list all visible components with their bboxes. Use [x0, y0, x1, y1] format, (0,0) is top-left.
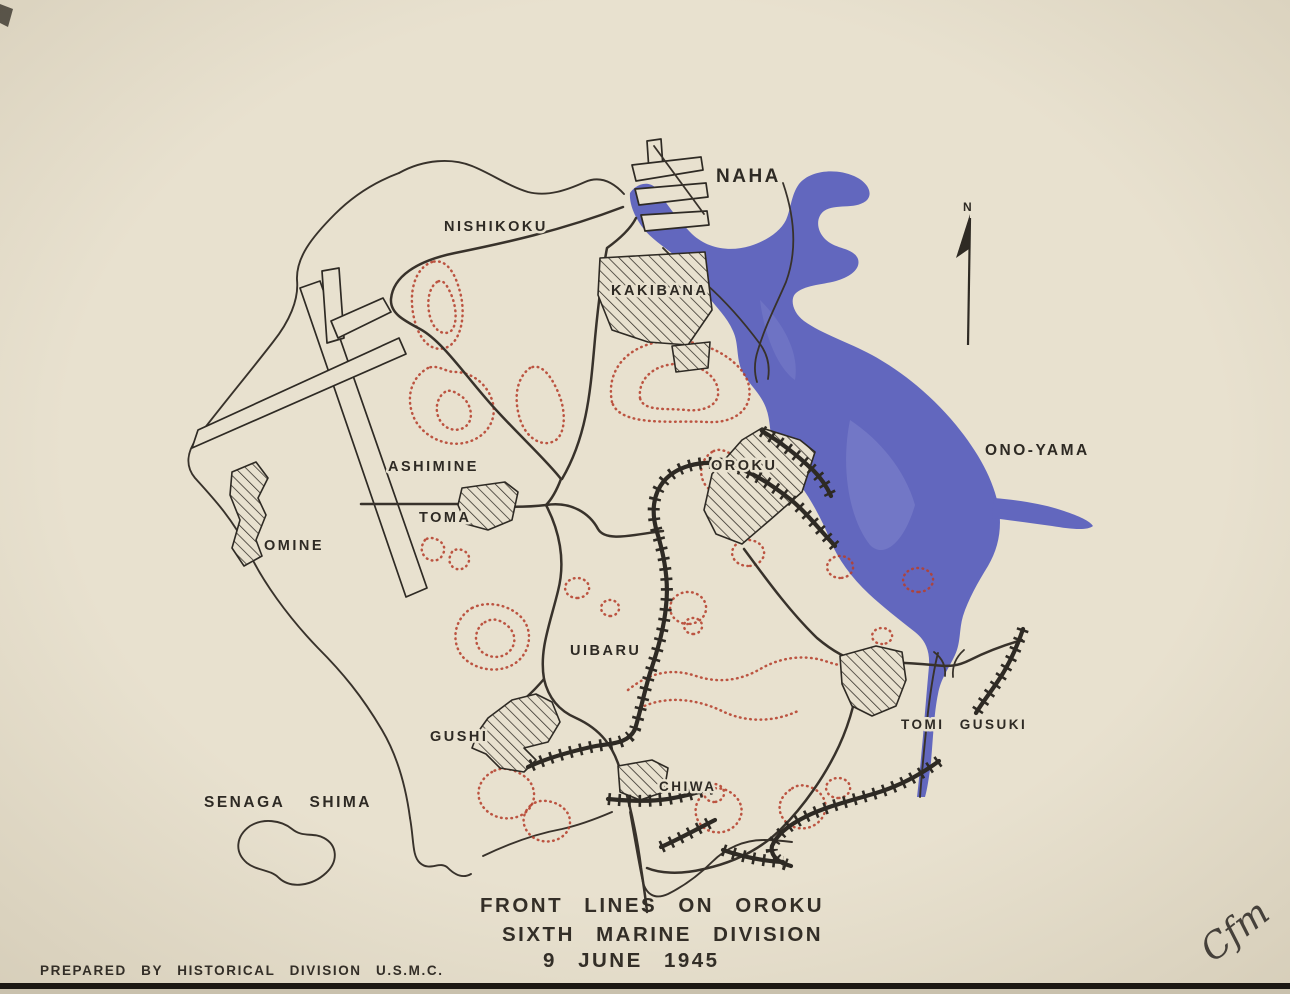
credit-line: PREPARED BY HISTORICAL DIVISION U.S.M.C.	[40, 963, 444, 978]
label-ashimine: ASHIMINE	[388, 459, 479, 475]
page-edge-line	[0, 983, 1290, 989]
north-label: N	[963, 200, 972, 214]
label-kakibana: KAKIBANA	[611, 283, 708, 299]
label-gushi: GUSHI	[430, 729, 488, 745]
paper-vignette	[0, 0, 1290, 994]
map-canvas: N NAHA NISHIKOKU KAKIBANA ASHIMINE TOMA …	[0, 0, 1290, 994]
label-toma: TOMA	[419, 510, 471, 526]
label-chiwa: CHIWA	[659, 779, 717, 794]
label-omine: OMINE	[264, 538, 324, 554]
page-edge-shadow	[0, 989, 1290, 994]
map-title-line-2: SIXTH MARINE DIVISION	[502, 923, 823, 946]
map-sheet: N NAHA NISHIKOKU KAKIBANA ASHIMINE TOMA …	[0, 0, 1290, 994]
label-tomi-gusuki: TOMI GUSUKI	[901, 717, 1027, 732]
map-title-line-1: FRONT LINES ON OROKU	[480, 894, 824, 917]
town-kakibana-annex	[672, 342, 710, 372]
map-title-line-3: 9 JUNE 1945	[543, 949, 720, 972]
label-naha: NAHA	[716, 166, 781, 187]
label-ono-yama: ONO-YAMA	[985, 442, 1090, 459]
label-senaga-shima: SENAGA SHIMA	[204, 794, 372, 811]
label-nishikoku: NISHIKOKU	[444, 219, 548, 235]
label-uibaru: UIBARU	[570, 643, 641, 659]
label-oroku: OROKU	[711, 458, 777, 474]
